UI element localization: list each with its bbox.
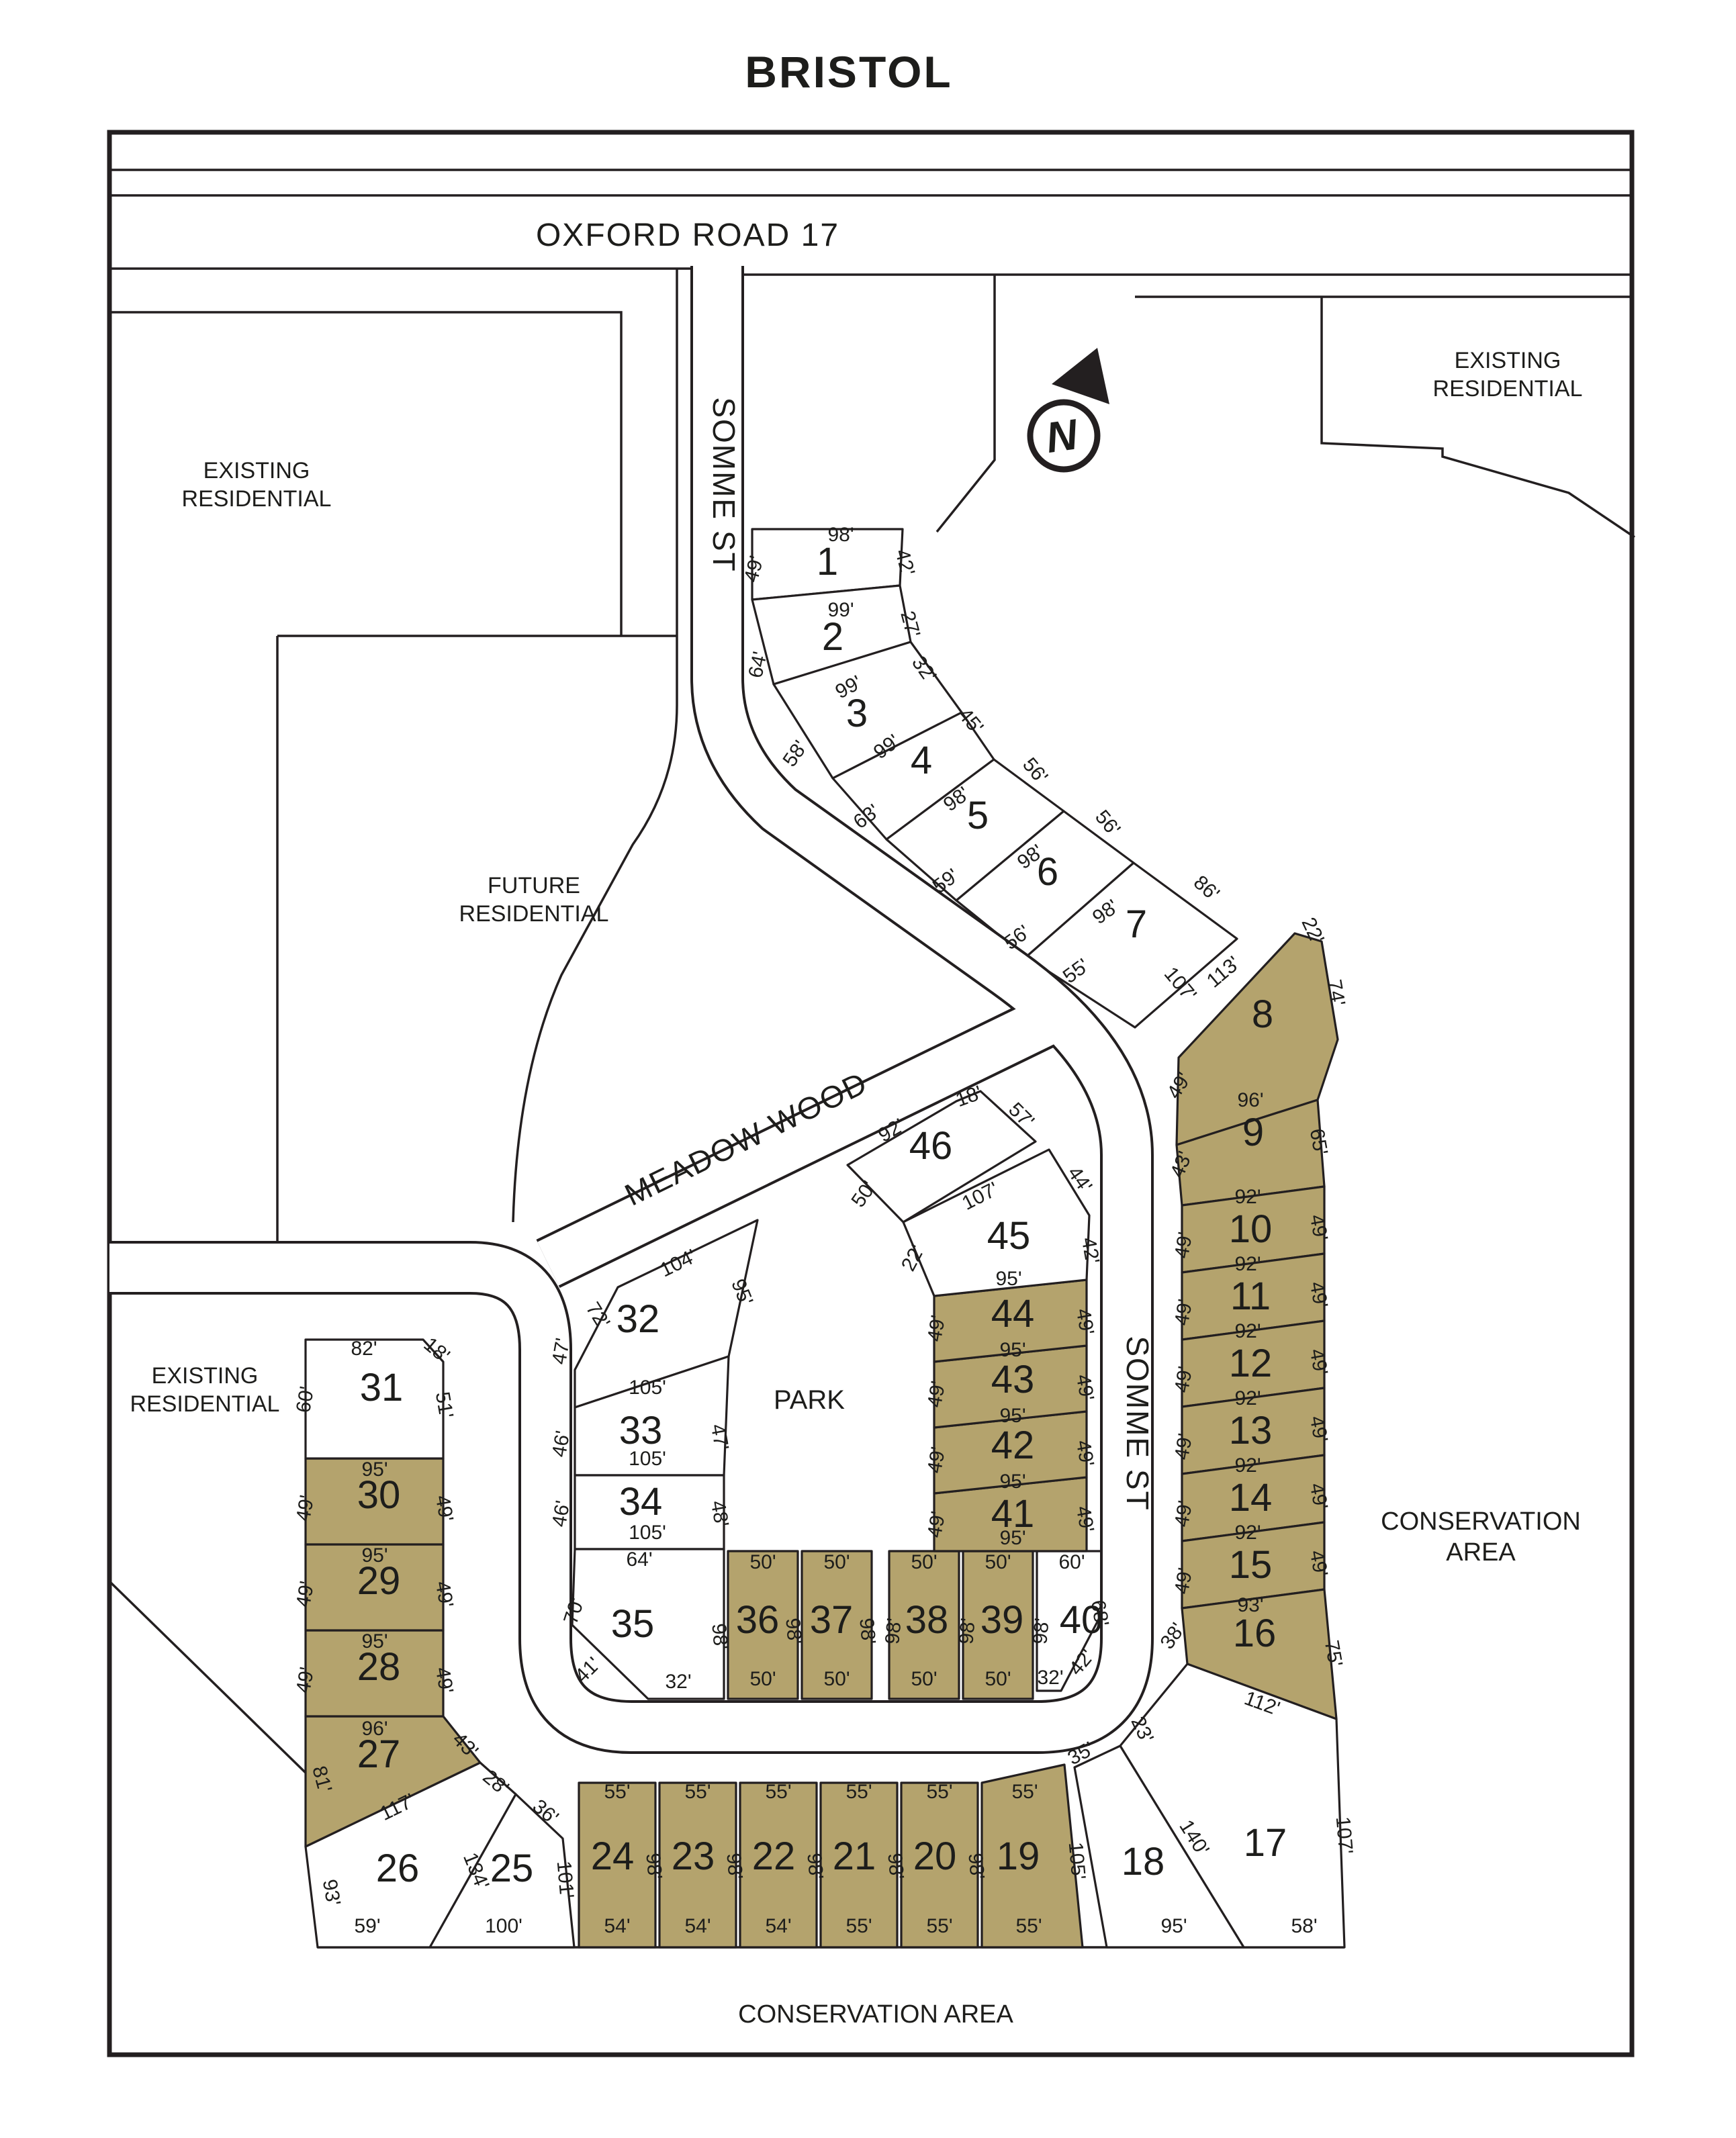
lot-20-dim-2: 55' xyxy=(926,1915,952,1937)
lot-21-number: 21 xyxy=(833,1834,876,1878)
lot-25-number: 25 xyxy=(490,1847,534,1890)
lot-11-dim-0: 92' xyxy=(1234,1253,1261,1275)
lot-12-dim-2: 49' xyxy=(1171,1364,1197,1394)
existing-residential-top-left-line-0: EXISTING xyxy=(203,458,310,483)
lot-40-dim-4: 32' xyxy=(1037,1667,1063,1689)
lot-41-dim-0: 49' xyxy=(923,1509,950,1539)
lot-29-dim-0: 95' xyxy=(361,1544,387,1567)
lot-16-number: 16 xyxy=(1233,1612,1277,1655)
lot-43-dim-0: 49' xyxy=(923,1379,950,1409)
lot-19-dim-0: 55' xyxy=(1011,1781,1038,1803)
conservation-area-south-line-0: CONSERVATION AREA xyxy=(738,2000,1013,2029)
lot-37-dim-2: 50' xyxy=(823,1668,850,1690)
lot-2-dim-0: 99' xyxy=(827,599,854,621)
lot-31-dim-3: 51' xyxy=(431,1390,457,1420)
lot-34-dim-2: 105' xyxy=(629,1522,666,1544)
lot-13-dim-0: 92' xyxy=(1234,1387,1261,1409)
page-title: BRISTOL xyxy=(745,47,952,97)
lot-10-dim-1: 49' xyxy=(1306,1213,1332,1242)
future-residential-line-1: RESIDENTIAL xyxy=(459,901,609,927)
lot-33-dim-1: 47' xyxy=(706,1422,733,1452)
lot-32-dim-2: 47' xyxy=(548,1336,574,1366)
lot-23-dim-2: 54' xyxy=(684,1915,711,1937)
lot-21-dim-0: 55' xyxy=(846,1781,872,1803)
lot-10-dim-2: 49' xyxy=(1171,1230,1197,1260)
lot-1-number: 1 xyxy=(817,540,838,584)
lot-14-dim-1: 49' xyxy=(1306,1481,1332,1511)
lot-17-dim-1: 107' xyxy=(1332,1816,1357,1855)
lot-39-dim-1: 98' xyxy=(955,1617,979,1645)
lot-11-number: 11 xyxy=(1230,1274,1271,1318)
lot-24-dim-2: 54' xyxy=(604,1915,630,1937)
lot-12-dim-1: 49' xyxy=(1306,1347,1332,1377)
lot-45-dim-2: 95' xyxy=(995,1268,1021,1290)
lot-29-dim-2: 49' xyxy=(431,1579,457,1609)
lot-12-number: 12 xyxy=(1229,1342,1273,1385)
lot-17-number: 17 xyxy=(1244,1821,1287,1865)
lot-11-dim-2: 49' xyxy=(1171,1297,1197,1327)
lot-28-dim-0: 95' xyxy=(361,1630,387,1653)
plat-svg: 198'49'42'299'27'64'399'32'58'499'45'63'… xyxy=(0,0,1736,2138)
lot-30-dim-1: 49' xyxy=(292,1493,318,1523)
lot-22-number: 22 xyxy=(752,1834,796,1878)
lot-41-dim-1: 49' xyxy=(1072,1504,1098,1534)
lot-37-dim-1: 98' xyxy=(855,1617,879,1645)
lot-34-dim-0: 46' xyxy=(548,1499,574,1528)
lot-42-dim-2: 95' xyxy=(999,1471,1025,1493)
lot-30-dim-0: 95' xyxy=(361,1458,387,1481)
existing-residential-top-right-line-0: EXISTING xyxy=(1455,348,1561,373)
lot-25-dim-2: 100' xyxy=(485,1915,522,1937)
lot-8-number: 8 xyxy=(1252,992,1273,1036)
lot-25-dim-1: 101' xyxy=(553,1860,578,1899)
lot-38-dim-1: 98' xyxy=(881,1617,905,1645)
lot-7-number: 7 xyxy=(1126,902,1147,946)
subdivision-plat-map: 198'49'42'299'27'64'399'32'58'499'45'63'… xyxy=(0,0,1736,2138)
lot-27-dim-0: 96' xyxy=(361,1718,387,1740)
conservation-area-south-label: CONSERVATION AREA xyxy=(738,2000,1013,2029)
lot-15-dim-1: 49' xyxy=(1306,1548,1332,1578)
lot-19-dim-2: 55' xyxy=(1015,1915,1042,1937)
lot-16-dim-0: 93' xyxy=(1237,1594,1263,1616)
lot-30-dim-2: 49' xyxy=(431,1493,457,1523)
lot-31-dim-2: 60' xyxy=(292,1385,318,1414)
lot-4-number: 4 xyxy=(911,739,932,782)
lot-11-dim-1: 49' xyxy=(1306,1280,1332,1309)
lot-28-dim-2: 49' xyxy=(431,1665,457,1695)
lot-26-number: 26 xyxy=(376,1847,420,1890)
lot-40-dim-2: 98' xyxy=(1029,1617,1053,1645)
lot-23-dim-1: 98' xyxy=(722,1852,746,1880)
lot-44-dim-2: 95' xyxy=(999,1339,1025,1361)
lot-38-dim-2: 50' xyxy=(911,1668,937,1690)
lot-24-dim-0: 55' xyxy=(604,1781,630,1803)
lot-22-dim-0: 55' xyxy=(765,1781,791,1803)
lot-17-dim-2: 58' xyxy=(1291,1915,1317,1937)
park-label: PARK xyxy=(774,1385,845,1415)
lot-43-dim-2: 95' xyxy=(999,1405,1025,1427)
park-line-0: PARK xyxy=(774,1385,845,1415)
lot-40-dim-1: 68' xyxy=(1087,1598,1113,1628)
lot-42-number: 42 xyxy=(991,1424,1035,1467)
lot-15-dim-0: 92' xyxy=(1234,1522,1261,1544)
lot-33-dim-0: 46' xyxy=(548,1429,574,1458)
lot-34-dim-1: 48' xyxy=(706,1499,733,1528)
lot-15-number: 15 xyxy=(1229,1543,1273,1587)
lot-36-number: 36 xyxy=(736,1598,780,1642)
future-residential-line-0: FUTURE xyxy=(488,873,580,898)
lot-26-dim-2: 93' xyxy=(318,1877,345,1907)
lot-35-number: 35 xyxy=(611,1602,655,1646)
lot-33-dim-2: 105' xyxy=(629,1448,666,1470)
lot-38-dim-0: 50' xyxy=(911,1551,937,1573)
conservation-area-east-line-1: AREA xyxy=(1446,1538,1516,1567)
existing-residential-top-right-line-1: RESIDENTIAL xyxy=(1433,376,1583,402)
lot-21-dim-1: 98' xyxy=(883,1852,907,1880)
lot-1-dim-0: 98' xyxy=(827,524,854,546)
lot-28-dim-1: 49' xyxy=(292,1665,318,1695)
lot-33-number: 33 xyxy=(619,1409,663,1452)
lot-14-dim-2: 49' xyxy=(1171,1499,1197,1528)
lot-35-dim-4: 32' xyxy=(665,1671,691,1693)
lot-9-dim-1: 65' xyxy=(1306,1127,1332,1156)
lot-42-dim-0: 49' xyxy=(923,1445,950,1475)
lot-18-number: 18 xyxy=(1122,1840,1165,1884)
lot-40-dim-0: 60' xyxy=(1058,1551,1085,1573)
lot-8-dim-2: 74' xyxy=(1323,978,1349,1007)
lot-31-dim-0: 82' xyxy=(351,1338,377,1360)
existing-residential-west-line-1: RESIDENTIAL xyxy=(130,1391,280,1417)
lot-36-dim-0: 50' xyxy=(749,1551,776,1573)
lot-10-number: 10 xyxy=(1229,1207,1273,1251)
lot-13-dim-1: 49' xyxy=(1306,1414,1332,1444)
lot-14-number: 14 xyxy=(1229,1476,1273,1520)
lot-19-number: 19 xyxy=(997,1834,1040,1878)
lot-29-dim-1: 49' xyxy=(292,1579,318,1609)
lot-14-dim-0: 92' xyxy=(1234,1454,1261,1477)
lot-23-number: 23 xyxy=(672,1834,715,1878)
lot-20-dim-1: 98' xyxy=(964,1852,988,1880)
lot-18-dim-2: 95' xyxy=(1160,1915,1187,1937)
lot-45-number: 45 xyxy=(987,1214,1031,1258)
lot-23-dim-0: 55' xyxy=(684,1781,711,1803)
road-label-somme-st-2: SOMME ST xyxy=(1120,1336,1155,1511)
lot-19-dim-1: 105' xyxy=(1064,1841,1090,1880)
road-label-somme-st-1: SOMME ST xyxy=(706,397,741,572)
lot-44-dim-1: 49' xyxy=(1072,1307,1098,1336)
lot-45-dim-1: 42' xyxy=(1077,1236,1103,1265)
lot-10-dim-0: 92' xyxy=(1234,1186,1261,1208)
lot-36-dim-1: 98' xyxy=(781,1617,805,1645)
lot-38-number: 38 xyxy=(905,1598,949,1642)
lot-37-dim-0: 50' xyxy=(823,1551,850,1573)
lot-2-number: 2 xyxy=(822,615,843,659)
lot-37-number: 37 xyxy=(810,1598,854,1642)
lot-21-dim-2: 55' xyxy=(846,1915,872,1937)
lot-32-number: 32 xyxy=(616,1297,660,1341)
lot-32-dim-4: 105' xyxy=(629,1377,666,1399)
lot-44-dim-0: 49' xyxy=(923,1313,950,1343)
lot-22-dim-2: 54' xyxy=(765,1915,791,1937)
lot-39-dim-2: 50' xyxy=(985,1668,1011,1690)
lot-9-dim-0: 96' xyxy=(1237,1089,1263,1111)
lot-24-number: 24 xyxy=(591,1834,635,1878)
lot-34-number: 34 xyxy=(619,1480,663,1524)
lot-43-number: 43 xyxy=(991,1358,1035,1401)
lot-43-dim-1: 49' xyxy=(1072,1373,1098,1402)
lot-39-number: 39 xyxy=(980,1598,1024,1642)
lot-46-number: 46 xyxy=(909,1124,953,1168)
lot-24-dim-1: 98' xyxy=(641,1852,666,1880)
lot-12-dim-0: 92' xyxy=(1234,1320,1261,1342)
road-label-oxford-road-17-0: OXFORD ROAD 17 xyxy=(536,218,839,253)
lot-22-dim-1: 98' xyxy=(803,1852,827,1880)
lot-36-dim-2: 50' xyxy=(749,1668,776,1690)
existing-residential-top-left-line-1: RESIDENTIAL xyxy=(182,486,332,512)
existing-residential-west-line-0: EXISTING xyxy=(152,1363,259,1389)
lot-13-dim-2: 49' xyxy=(1171,1432,1197,1461)
lot-20-dim-0: 55' xyxy=(926,1781,952,1803)
lot-13-number: 13 xyxy=(1229,1409,1273,1452)
lot-35-dim-0: 64' xyxy=(626,1548,652,1571)
lot-16-dim-2: 75' xyxy=(1320,1638,1346,1668)
conservation-area-east-line-0: CONSERVATION xyxy=(1381,1507,1581,1536)
lot-39-dim-0: 50' xyxy=(985,1551,1011,1573)
lot-42-dim-1: 49' xyxy=(1072,1438,1098,1468)
lot-31-number: 31 xyxy=(360,1366,404,1409)
lot-9-number: 9 xyxy=(1242,1111,1264,1154)
lot-20-number: 20 xyxy=(913,1834,957,1878)
lot-41-dim-2: 95' xyxy=(999,1527,1025,1549)
lot-44-number: 44 xyxy=(991,1292,1035,1336)
lot-15-dim-2: 49' xyxy=(1171,1566,1197,1595)
lot-26-dim-3: 59' xyxy=(354,1915,380,1937)
lot-35-dim-2: 98' xyxy=(707,1622,731,1651)
